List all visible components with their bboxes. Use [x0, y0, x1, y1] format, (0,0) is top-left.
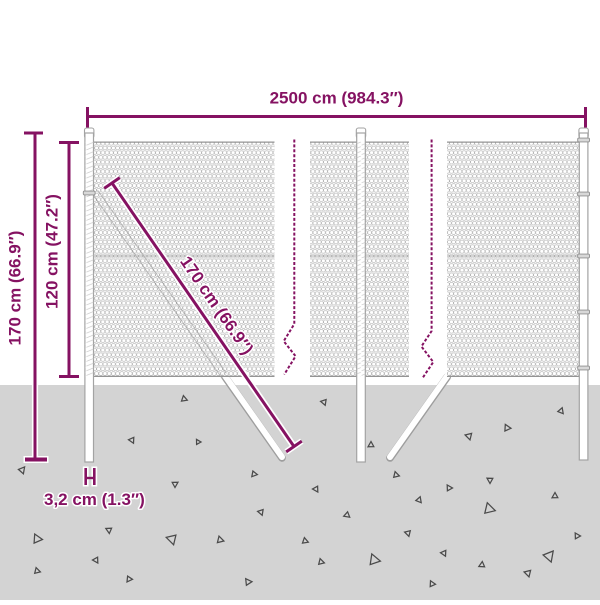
svg-text:120 cm (47.2″): 120 cm (47.2″) — [43, 194, 62, 309]
svg-text:3,2 cm (1.3″): 3,2 cm (1.3″) — [44, 490, 145, 509]
svg-text:2500 cm (984.3″): 2500 cm (984.3″) — [270, 89, 404, 108]
svg-text:170 cm (66.9″): 170 cm (66.9″) — [5, 231, 24, 346]
